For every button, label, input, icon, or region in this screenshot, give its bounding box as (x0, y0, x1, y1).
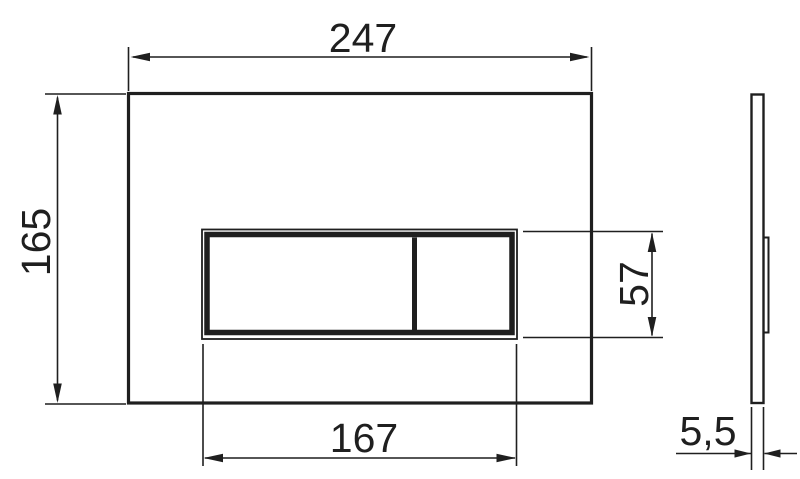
front-view (129, 94, 592, 404)
arrow-right-icon (570, 53, 590, 62)
technical-drawing-canvas: 247 165 167 (0, 0, 800, 479)
arrow-right-icon (735, 449, 752, 457)
dim-plate-height: 165 (13, 94, 126, 404)
plate-outline (129, 94, 592, 404)
button-profile-protrusion (764, 238, 769, 333)
arrow-right-icon (497, 454, 517, 463)
arrow-left-icon (764, 449, 781, 457)
dim-label-plate-thickness: 5,5 (680, 408, 737, 454)
arrow-up-icon (648, 233, 657, 253)
arrow-down-icon (648, 317, 657, 337)
side-view (752, 95, 769, 404)
dim-plate-thickness: 5,5 (676, 407, 797, 470)
dim-label-plate-height: 165 (13, 208, 59, 276)
dim-plate-width: 247 (129, 15, 592, 91)
arrow-left-icon (131, 53, 151, 62)
plate-profile-outline (752, 95, 764, 404)
arrow-down-icon (53, 384, 62, 404)
flush-plate-dimension-drawing: 247 165 167 (0, 0, 800, 479)
linework: 247 165 167 (13, 15, 797, 470)
dim-label-plate-width: 247 (329, 15, 397, 61)
arrow-left-icon (204, 454, 224, 463)
dim-label-button-panel-width: 167 (330, 415, 398, 461)
dim-label-button-panel-height: 57 (611, 261, 657, 307)
arrow-up-icon (53, 95, 62, 115)
